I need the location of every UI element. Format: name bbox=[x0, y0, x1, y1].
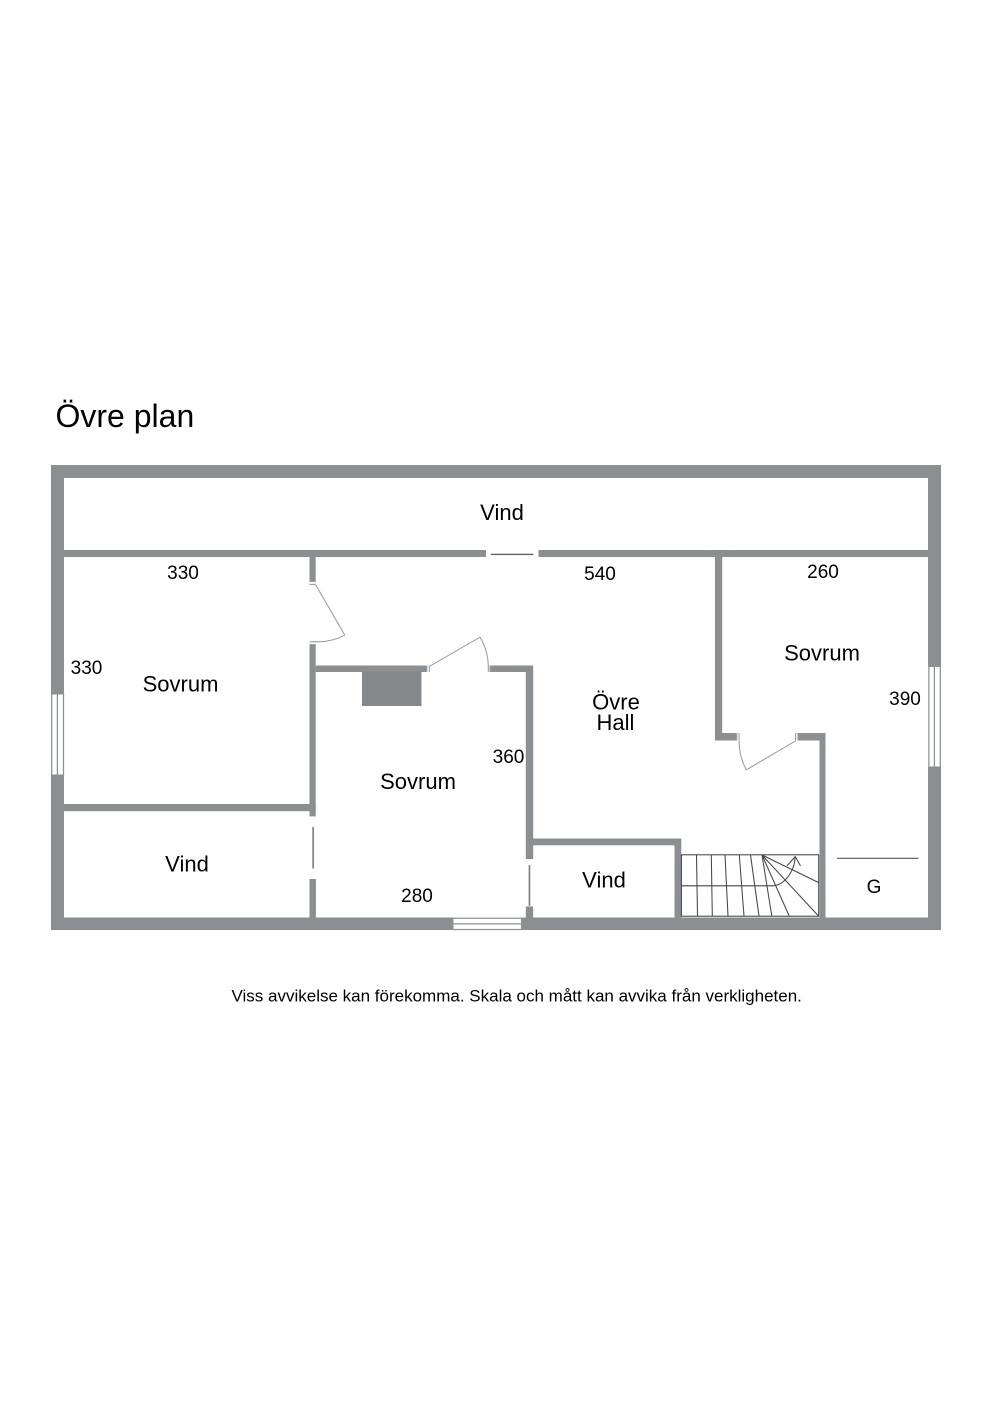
svg-text:540: 540 bbox=[584, 564, 616, 585]
svg-text:360: 360 bbox=[493, 747, 525, 768]
svg-text:Sovrum: Sovrum bbox=[784, 641, 860, 666]
svg-text:Sovrum: Sovrum bbox=[143, 672, 219, 697]
svg-text:280: 280 bbox=[401, 886, 433, 907]
svg-text:Vind: Vind bbox=[582, 868, 626, 893]
svg-text:390: 390 bbox=[889, 689, 921, 710]
svg-text:Vind: Vind bbox=[480, 500, 524, 525]
svg-text:Vind: Vind bbox=[165, 852, 209, 877]
svg-text:260: 260 bbox=[807, 562, 839, 583]
svg-text:Viss avvikelse kan förekomma.: Viss avvikelse kan förekomma. Skala och … bbox=[232, 987, 802, 1006]
svg-text:Hall: Hall bbox=[597, 710, 635, 735]
svg-text:Sovrum: Sovrum bbox=[380, 769, 456, 794]
svg-text:330: 330 bbox=[71, 658, 103, 679]
svg-text:330: 330 bbox=[167, 563, 199, 584]
svg-text:Övre plan: Övre plan bbox=[56, 398, 195, 434]
svg-text:G: G bbox=[867, 877, 882, 898]
